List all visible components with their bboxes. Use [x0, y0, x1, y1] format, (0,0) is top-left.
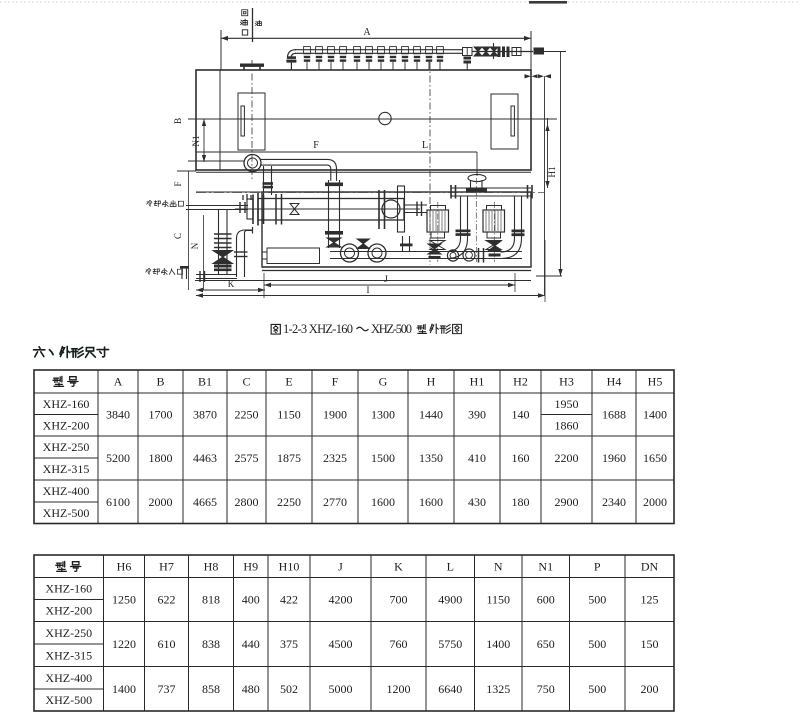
svg-text:XHZ-500: XHZ-500: [43, 506, 90, 520]
svg-text:4900: 4900: [438, 593, 462, 607]
svg-text:1960: 1960: [602, 451, 626, 465]
svg-text:150: 150: [641, 637, 659, 651]
svg-text:K: K: [228, 279, 235, 289]
svg-text:200: 200: [641, 682, 659, 696]
svg-text:3840: 3840: [106, 408, 130, 422]
svg-text:4665: 4665: [193, 495, 217, 509]
svg-text:1600: 1600: [419, 495, 443, 509]
svg-text:480: 480: [242, 682, 260, 696]
svg-text:140: 140: [512, 408, 530, 422]
svg-text:440: 440: [242, 637, 260, 651]
svg-text:6100: 6100: [106, 495, 130, 509]
svg-text:500: 500: [588, 637, 606, 651]
svg-text:XHZ-200: XHZ-200: [43, 418, 90, 432]
svg-text:1250: 1250: [112, 593, 136, 607]
svg-text:1440: 1440: [419, 408, 443, 422]
svg-text:500: 500: [588, 682, 606, 696]
svg-text:XHZ-315: XHZ-315: [43, 462, 90, 476]
svg-text:1400: 1400: [643, 408, 667, 422]
svg-text:1800: 1800: [149, 451, 173, 465]
svg-text:A: A: [363, 27, 371, 38]
svg-text:F: F: [332, 375, 339, 389]
svg-text:502: 502: [280, 682, 298, 696]
svg-text:1200: 1200: [387, 682, 411, 696]
svg-text:1688: 1688: [602, 408, 626, 422]
svg-text:2250: 2250: [235, 408, 259, 422]
svg-text:375: 375: [280, 637, 298, 651]
svg-text:B: B: [156, 375, 164, 389]
svg-text:1325: 1325: [486, 682, 510, 696]
svg-text:DN: DN: [641, 559, 659, 573]
svg-text:760: 760: [390, 637, 408, 651]
svg-text:1350: 1350: [419, 451, 443, 465]
svg-text:1220: 1220: [112, 637, 136, 651]
svg-text:500: 500: [588, 593, 606, 607]
svg-text:C: C: [173, 233, 183, 239]
svg-text:2250: 2250: [277, 495, 301, 509]
svg-text:H10: H10: [279, 559, 300, 573]
svg-text:2000: 2000: [643, 495, 667, 509]
svg-text:6640: 6640: [438, 682, 462, 696]
svg-text:1300: 1300: [371, 408, 395, 422]
svg-text:1500: 1500: [371, 451, 395, 465]
svg-text:H6: H6: [117, 559, 132, 573]
svg-text:180: 180: [512, 495, 530, 509]
svg-text:XHZ-200: XHZ-200: [45, 604, 92, 618]
svg-text:J: J: [338, 559, 343, 573]
svg-text:1-2-3 XHZ-160: 1-2-3 XHZ-160: [283, 322, 353, 336]
svg-text:1875: 1875: [277, 451, 301, 465]
svg-text:XHZ-500: XHZ-500: [371, 322, 412, 336]
svg-text:430: 430: [468, 495, 486, 509]
svg-text:H3: H3: [559, 375, 574, 389]
svg-text:H9: H9: [243, 559, 258, 573]
svg-text:I: I: [367, 285, 370, 295]
svg-text:2770: 2770: [323, 495, 347, 509]
svg-text:H2: H2: [513, 375, 528, 389]
svg-text:400: 400: [242, 593, 260, 607]
svg-text:XHZ-400: XHZ-400: [43, 484, 90, 498]
svg-text:1650: 1650: [643, 451, 667, 465]
svg-text:H4: H4: [607, 375, 622, 389]
svg-text:1900: 1900: [323, 408, 347, 422]
svg-text:H: H: [427, 375, 436, 389]
svg-text:4463: 4463: [193, 451, 217, 465]
svg-text:125: 125: [641, 593, 659, 607]
svg-text:H1: H1: [470, 375, 485, 389]
svg-text:P: P: [594, 559, 601, 573]
svg-text:XHZ-160: XHZ-160: [43, 397, 90, 411]
svg-text:1400: 1400: [486, 637, 510, 651]
svg-text:C: C: [242, 375, 250, 389]
svg-text:E: E: [285, 375, 292, 389]
svg-text:650: 650: [537, 637, 555, 651]
svg-text:F: F: [313, 140, 319, 151]
svg-text:B1: B1: [198, 375, 212, 389]
svg-text:1700: 1700: [149, 408, 173, 422]
svg-text:5750: 5750: [438, 637, 462, 651]
svg-text:N1: N1: [538, 559, 553, 573]
svg-text:5000: 5000: [329, 682, 353, 696]
svg-text:1400: 1400: [112, 682, 136, 696]
svg-text:1150: 1150: [486, 593, 510, 607]
svg-text:858: 858: [202, 682, 220, 696]
svg-text:2325: 2325: [323, 451, 347, 465]
svg-text:H8: H8: [204, 559, 219, 573]
svg-text:1600: 1600: [371, 495, 395, 509]
svg-text:4500: 4500: [329, 637, 353, 651]
svg-text:XHZ-250: XHZ-250: [45, 626, 92, 640]
svg-text:390: 390: [468, 408, 486, 422]
svg-text:XHZ-315: XHZ-315: [45, 648, 92, 662]
svg-text:700: 700: [390, 593, 408, 607]
svg-text:2900: 2900: [555, 495, 579, 509]
svg-text:1150: 1150: [277, 408, 301, 422]
svg-text:5200: 5200: [106, 451, 130, 465]
svg-text:H7: H7: [159, 559, 174, 573]
svg-text:838: 838: [202, 637, 220, 651]
svg-text:H1: H1: [547, 167, 557, 178]
svg-text:A: A: [114, 375, 123, 389]
svg-text:2000: 2000: [149, 495, 173, 509]
svg-text:160: 160: [512, 451, 530, 465]
svg-text:610: 610: [158, 637, 176, 651]
svg-text:737: 737: [158, 682, 176, 696]
svg-text:750: 750: [537, 682, 555, 696]
svg-text:1950: 1950: [555, 397, 579, 411]
svg-text:XHZ-400: XHZ-400: [45, 671, 92, 685]
svg-text:B: B: [174, 118, 184, 124]
svg-text:422: 422: [280, 593, 298, 607]
svg-text:3870: 3870: [193, 408, 217, 422]
svg-text:4200: 4200: [329, 593, 353, 607]
svg-text:818: 818: [202, 593, 220, 607]
svg-text:XHZ-250: XHZ-250: [43, 440, 90, 454]
svg-text:600: 600: [537, 593, 555, 607]
svg-text:XHZ-160: XHZ-160: [45, 582, 92, 596]
svg-text:K: K: [394, 559, 403, 573]
svg-text:H5: H5: [648, 375, 663, 389]
svg-text:2340: 2340: [602, 495, 626, 509]
svg-text:410: 410: [468, 451, 486, 465]
svg-text:N1: N1: [191, 136, 201, 147]
svg-text:N: N: [494, 559, 503, 573]
svg-text:2200: 2200: [555, 451, 579, 465]
svg-text:622: 622: [158, 593, 176, 607]
svg-text:L: L: [422, 140, 428, 151]
svg-text:F: F: [173, 181, 183, 186]
svg-text:XHZ-500: XHZ-500: [45, 693, 92, 707]
svg-text:N: N: [190, 242, 200, 249]
svg-text:J: J: [384, 275, 388, 285]
svg-text:2575: 2575: [235, 451, 259, 465]
svg-text:2800: 2800: [235, 495, 259, 509]
svg-text:1860: 1860: [555, 418, 579, 432]
svg-text:G: G: [379, 375, 388, 389]
svg-text:L: L: [447, 559, 454, 573]
